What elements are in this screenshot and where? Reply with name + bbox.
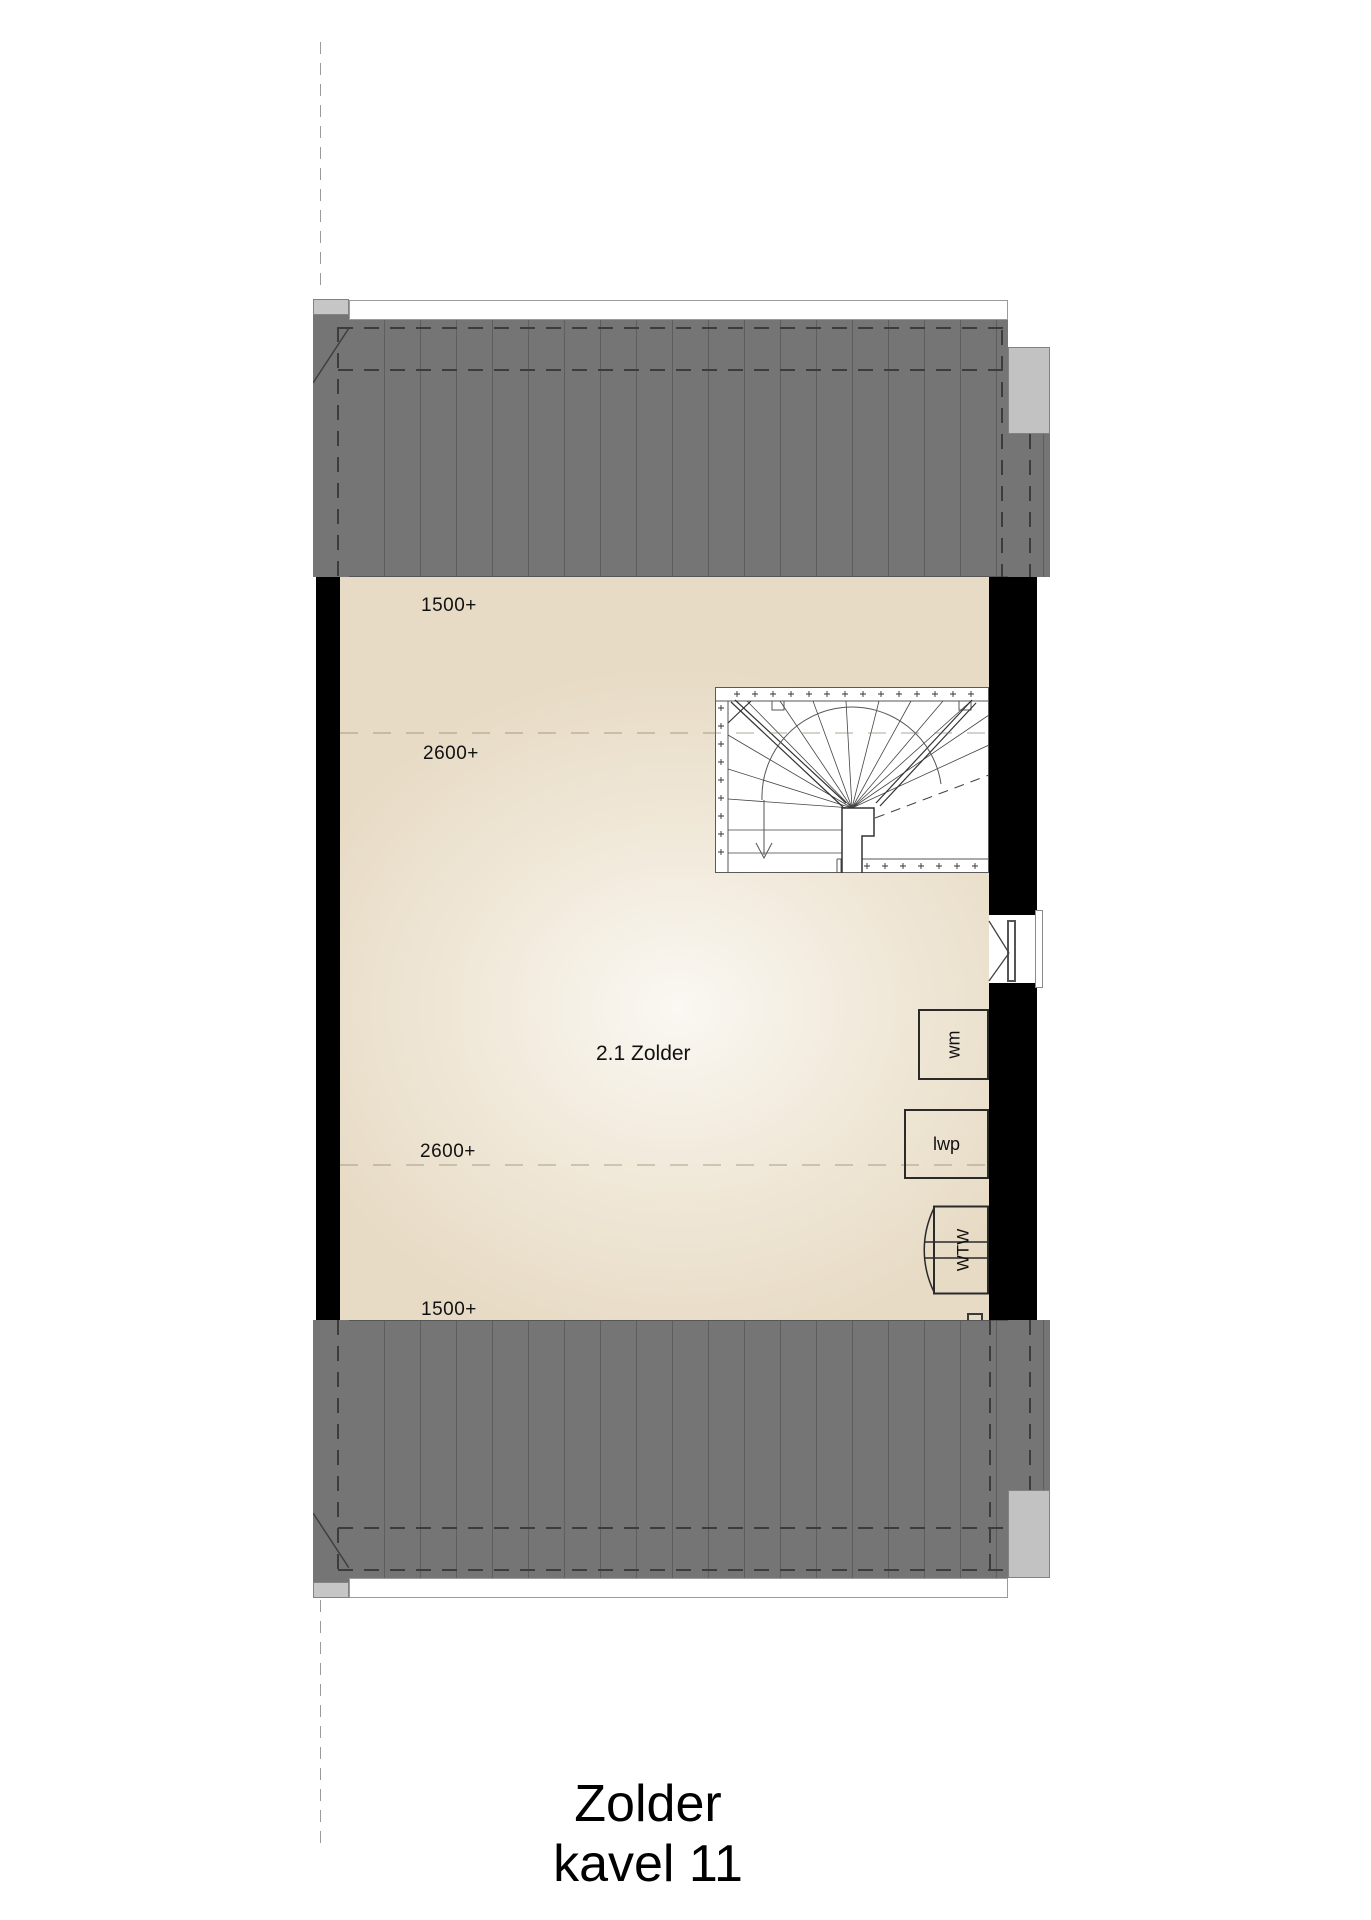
roof-cap-bottom-right — [1008, 1490, 1050, 1578]
roof-hip-line-top-left — [313, 320, 349, 390]
height-annotation: 1500+ — [421, 1299, 477, 1321]
washing-machine-box: wm — [918, 1009, 989, 1080]
roof-overhang-dash — [1029, 1320, 1031, 1490]
roof-overhang-dash — [338, 1527, 1008, 1529]
heat-pump-box: lwp — [904, 1109, 989, 1179]
sheet-title-line1: Zolder — [398, 1774, 898, 1834]
height-annotation: 1500+ — [421, 595, 477, 617]
window-sill — [1035, 910, 1043, 988]
height-contour-line — [340, 1164, 989, 1166]
heat-recovery-unit: WTW — [918, 1205, 990, 1295]
wall-right-lower — [989, 983, 1037, 1320]
height-annotation: 2600+ — [423, 743, 479, 765]
height-contour-line — [340, 732, 989, 734]
roof-top — [349, 320, 1008, 577]
wtw-curved-front — [924, 1208, 934, 1292]
room-label: 2.1 Zolder — [596, 1042, 691, 1066]
wall-left — [316, 577, 340, 1320]
wall-right-upper — [989, 577, 1037, 915]
roof-overhang-dash — [337, 1320, 339, 1570]
guide-line-bottom — [320, 1600, 321, 1848]
roof-cap-top-left — [313, 299, 349, 315]
roof-hip-line-bottom-left — [313, 1506, 349, 1576]
roof-cap-bottom-left — [313, 1582, 349, 1598]
washing-machine-label: wm — [943, 1031, 964, 1059]
guide-line-top — [320, 42, 321, 288]
roof-overhang-dash — [338, 1569, 1008, 1571]
sheet-title-line2: kavel 11 — [398, 1834, 898, 1894]
roof-overhang-dash — [1029, 434, 1031, 577]
roof-overhang-dash — [989, 1320, 991, 1578]
height-annotation: 2600+ — [420, 1141, 476, 1163]
window-swing-symbol — [985, 915, 1015, 985]
roof-overhang-dash — [337, 327, 339, 577]
heat-recovery-label: WTW — [953, 1229, 972, 1271]
winder-staircase — [715, 687, 989, 873]
roof-eave-bottom — [349, 1578, 1008, 1598]
floor-plan-sheet: 1500+ 2600+ 2600+ 1500+ 2.1 Zolder wm lw… — [0, 0, 1371, 1920]
roof-bottom — [349, 1320, 1008, 1578]
roof-overhang-dash — [338, 369, 1008, 371]
roof-overhang-dash — [1001, 330, 1003, 577]
roof-eave-top — [349, 300, 1008, 320]
roof-cap-top-right — [1008, 347, 1050, 434]
roof-overhang-dash — [338, 327, 1008, 329]
heat-pump-label: lwp — [933, 1134, 960, 1155]
sheet-title: Zolder kavel 11 — [398, 1774, 898, 1894]
